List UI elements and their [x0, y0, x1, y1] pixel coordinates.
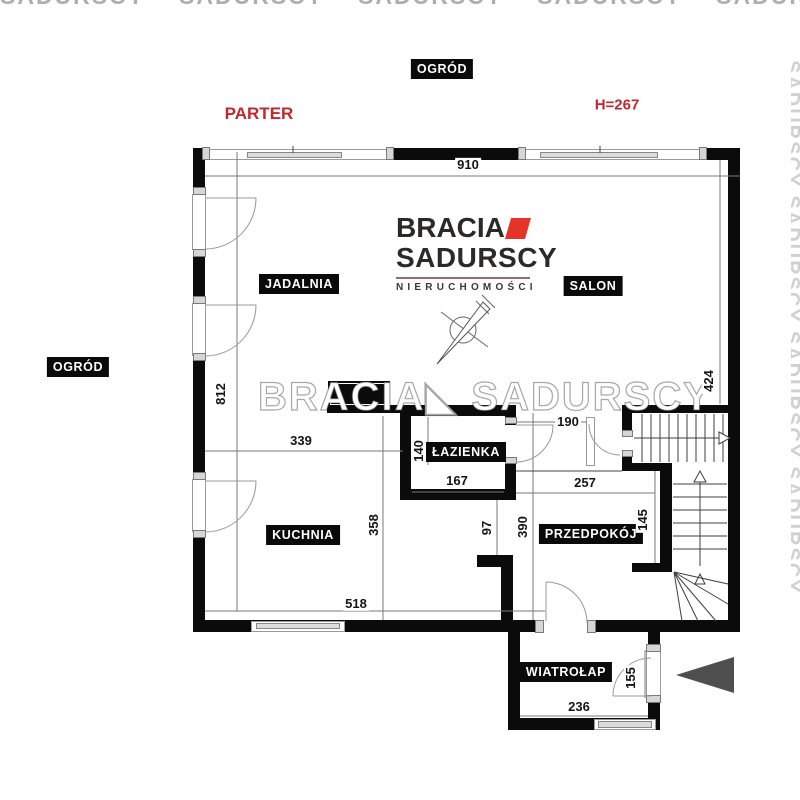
dim-corridor-gap: 97	[480, 519, 494, 537]
door-frame	[192, 194, 206, 250]
dim-bathroom-depth: 140	[412, 438, 426, 464]
window-jamb	[518, 147, 526, 160]
door-jamb	[646, 644, 661, 652]
brand-divider	[396, 277, 530, 279]
ceiling-height-label: H=267	[595, 97, 640, 114]
brand-tagline: NIERUCHOMOŚCI	[396, 283, 557, 293]
watermark-right-strip: SADURSCY SADURSCY SADURSCY SADURSCY	[791, 60, 800, 740]
wall	[632, 563, 672, 572]
window-sill	[540, 152, 658, 158]
dim-right-height: 424	[702, 368, 716, 394]
wall	[193, 620, 543, 632]
brand-name-bracia: BRACIA	[396, 214, 505, 242]
door-jamb	[193, 353, 206, 361]
dim-dining-kitchen-width: 339	[288, 434, 314, 448]
wall	[501, 555, 513, 632]
door-jamb	[535, 620, 544, 633]
floor-title: PARTER	[225, 104, 294, 124]
wall	[400, 489, 512, 500]
floor-plan-page: SADURSCY SADURSCY SADURSCY SADURSCY SADU…	[0, 0, 800, 800]
north-arrow-icon	[437, 295, 495, 364]
dim-stair-niche: 145	[636, 507, 650, 533]
watermark-right-text: SADURSCY SADURSCY SADURSCY SADURSCY	[791, 60, 800, 595]
door-jamb	[193, 296, 206, 304]
room-label-dining: JADALNIA	[259, 274, 339, 294]
door-jamb	[622, 430, 633, 437]
door-jamb	[587, 620, 596, 633]
garden-label-left: OGRÓD	[47, 357, 109, 377]
door-jamb	[646, 695, 661, 703]
brand-red-parallelogram-icon	[505, 218, 531, 239]
wall	[505, 460, 516, 500]
wall	[508, 632, 520, 730]
door-jamb	[505, 457, 517, 464]
window-sill	[598, 721, 652, 728]
room-label-bathroom: ŁAZIENKA	[426, 442, 506, 462]
entrance-arrow-icon	[676, 657, 734, 693]
watermark-top-text: SADURSCY SADURSCY SADURSCY SADURSCY SADU…	[0, 0, 800, 9]
dim-vestibule-width: 236	[566, 700, 592, 714]
window-jamb	[202, 147, 210, 160]
watermark-top-strip: SADURSCY SADURSCY SADURSCY SADURSCY SADU…	[0, 0, 800, 9]
dim-top-width: 910	[455, 158, 481, 172]
dim-bottom-width: 518	[343, 597, 369, 611]
door-jamb	[193, 187, 206, 195]
door-frame	[192, 479, 206, 532]
door-jamb	[622, 450, 633, 457]
window-sill	[247, 152, 342, 158]
door-jamb	[193, 472, 206, 480]
brand-name-sadurscy: SADURSCY	[396, 244, 557, 272]
room-label-living: SALON	[564, 276, 623, 296]
wall	[588, 620, 740, 632]
door-jamb	[193, 249, 206, 257]
dim-passage-width: 190	[555, 415, 581, 429]
brand-logo-line1: BRACIA	[396, 214, 557, 242]
brand-logo: BRACIA SADURSCY NIERUCHOMOŚCI	[396, 214, 557, 293]
window-sill	[256, 623, 340, 629]
wall	[660, 463, 672, 572]
room-label-vestibule: WIATROŁAP	[520, 662, 612, 682]
dim-hall-width: 257	[572, 476, 598, 490]
door-frame	[192, 303, 206, 356]
dim-kitchen-depth: 358	[367, 512, 381, 538]
dim-bathroom-width: 167	[444, 474, 470, 488]
door-leaf	[586, 417, 595, 466]
wall	[193, 532, 205, 632]
wall	[728, 148, 740, 632]
door-jamb	[193, 530, 206, 538]
wall	[193, 250, 205, 302]
watermark-center-text: BRACIA◣ SADURSCY	[258, 374, 712, 420]
entry-door-frame	[646, 651, 661, 697]
window-jamb	[699, 147, 707, 160]
garden-label-top: OGRÓD	[411, 59, 473, 79]
dim-entry-door: 155	[624, 665, 638, 691]
wall	[193, 355, 205, 478]
dim-left-height: 812	[214, 381, 228, 407]
dim-hall-depth: 390	[516, 514, 530, 540]
window-jamb	[386, 147, 394, 160]
room-label-hallway: PRZEDPOKÓJ	[539, 524, 643, 544]
room-label-kitchen: KUCHNIA	[266, 525, 340, 545]
